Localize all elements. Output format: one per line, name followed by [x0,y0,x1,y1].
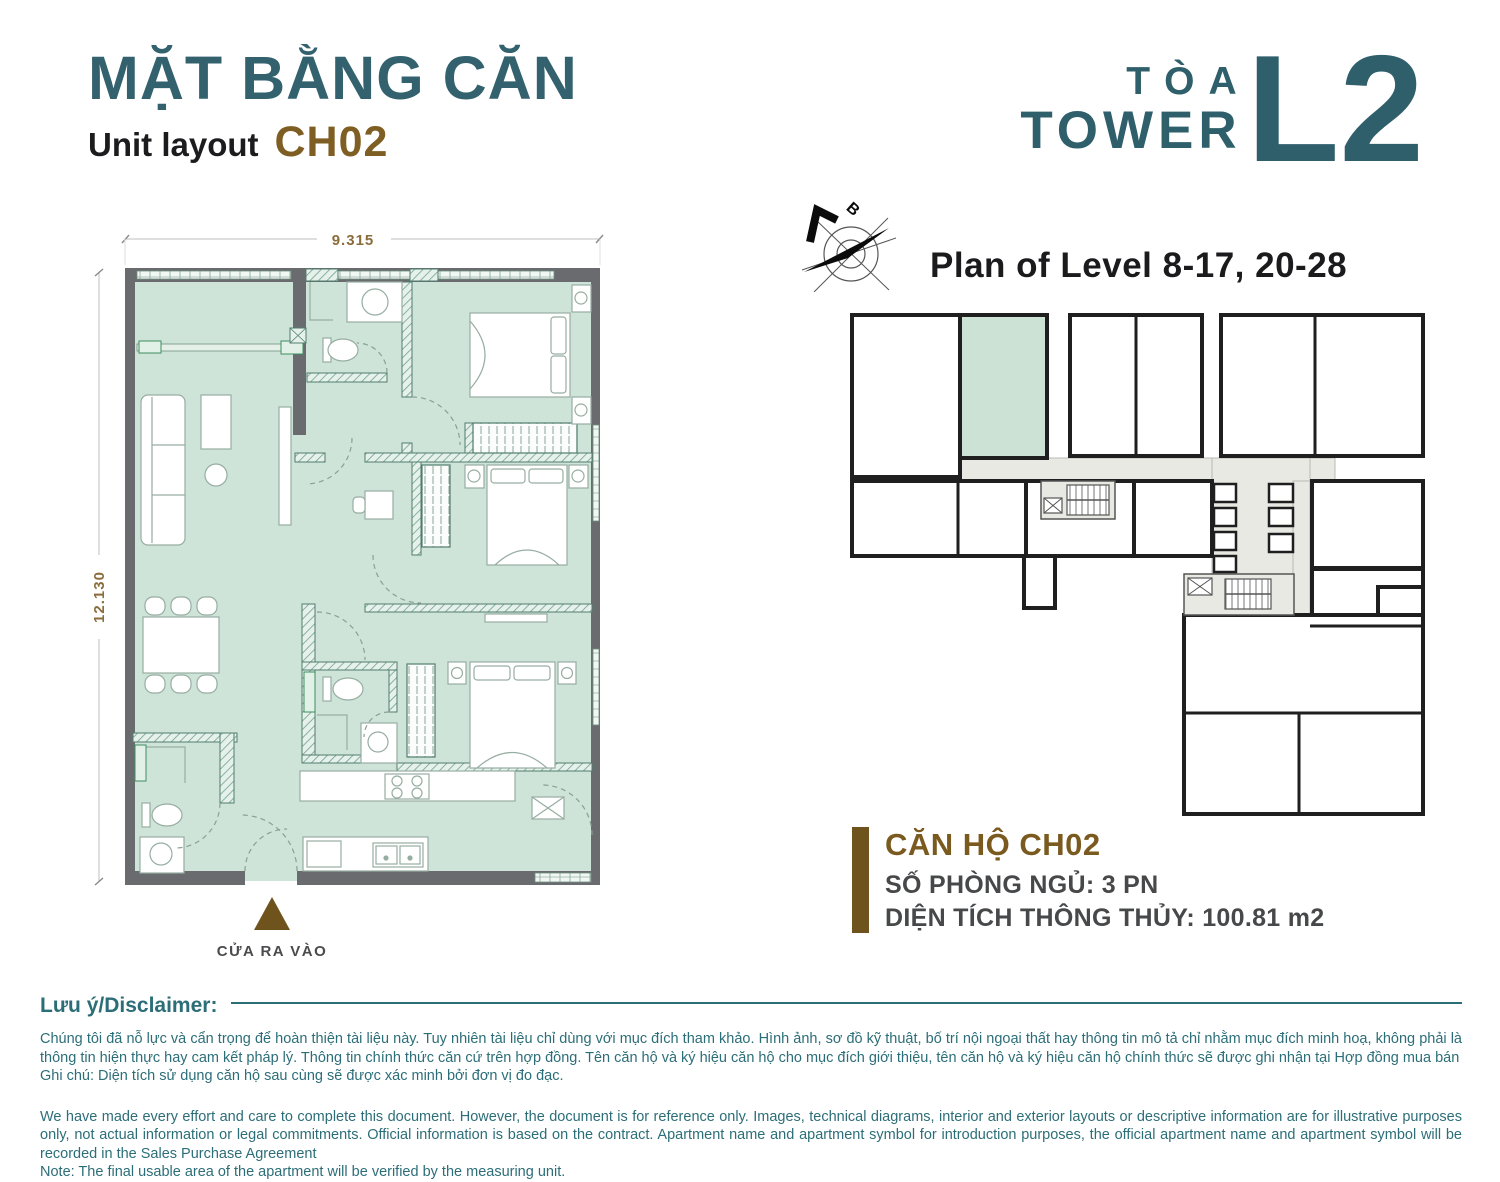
disclaimer-vn-note: Ghi chú: Diện tích sử dụng căn hộ sau cù… [40,1067,1462,1086]
sofa [141,395,185,545]
tower-label-en: TOWER [1020,104,1241,157]
highlighted-unit-ch02 [960,315,1047,458]
disclaimer-heading: Lưu ý/Disclaimer: [40,994,217,1018]
unit-floor-plan: 9.315 12.130 [85,225,615,965]
compass-icon: B [796,192,896,292]
compass-north-label: B [843,199,863,219]
tower-label-vn: TÒA [1020,62,1250,101]
page-title: MẶT BẰNG CĂN [88,46,578,110]
tv-console [279,407,291,525]
dimension-height: 12.130 [91,269,108,885]
accent-bar [852,827,869,933]
bath3-toilet [333,678,363,700]
dining-table [143,617,219,673]
unit-name: CĂN HỘ CH02 [885,827,1324,863]
dimension-width: 9.315 [122,232,603,265]
dim-width-label: 9.315 [332,232,375,249]
stair-core-2 [1184,574,1294,615]
bath2-toilet [152,804,182,826]
dim-height-label: 12.130 [91,571,108,623]
bath1-sink [362,289,388,315]
stair-core-1 [1041,481,1115,519]
tower-header: TÒA TOWER L2 [1020,50,1424,169]
coffee-table [201,395,231,449]
unit-info-block: CĂN HỘ CH02 SỐ PHÒNG NGỦ: 3 PN DIỆN TÍCH… [852,827,1324,933]
cabinet [307,841,341,867]
disclaimer-rule [231,1002,1462,1004]
unit-bedrooms: SỐ PHÒNG NGỦ: 3 PN [885,871,1324,900]
disclaimer-en: We have made every effort and care to co… [40,1108,1462,1164]
page-subtitle: Unit layout [88,126,259,164]
bath3-sink [368,732,388,752]
desk [365,491,393,519]
bath1-toilet [328,339,358,361]
tv-shelf [485,614,547,622]
stove [385,774,429,799]
unit-area: DIỆN TÍCH THÔNG THỦY: 100.81 m2 [885,904,1324,933]
entrance-arrow [254,897,290,930]
building-key-plan [845,312,1425,820]
bath2-sink [150,843,172,865]
tower-code: L2 [1247,50,1424,169]
entrance-label: CỬA RA VÀO [217,942,328,960]
disclaimer-vn: Chúng tôi đã nỗ lực và cẩn trọng để hoàn… [40,1030,1462,1067]
page-header-left: MẶT BẰNG CĂN Unit layout CH02 [88,46,578,167]
stool [205,464,227,486]
key-plan-title: Plan of Level 8-17, 20-28 [930,246,1347,286]
disclaimer-section: Lưu ý/Disclaimer: Chúng tôi đã nỗ lực và… [40,994,1462,1182]
north-arrow [810,210,837,242]
unit-code-label: CH02 [275,118,389,167]
